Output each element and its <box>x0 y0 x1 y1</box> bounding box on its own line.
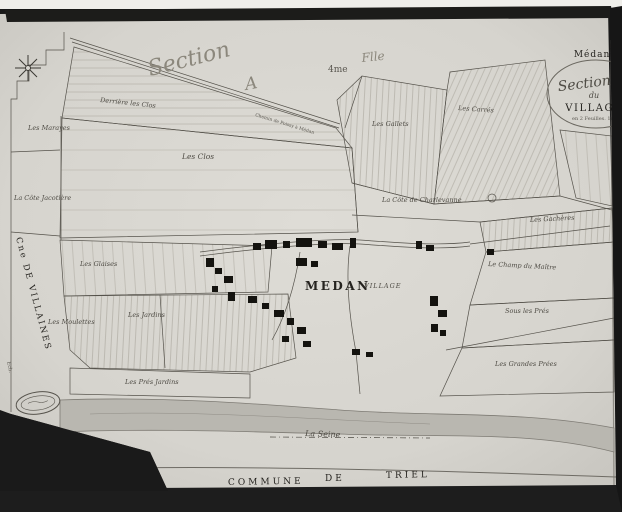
triel-word-triel: TRIEL <box>386 470 430 481</box>
label-les-pres-jardins: Les Prés Jardins <box>124 378 179 386</box>
field-les-carres <box>434 60 560 204</box>
triel-word-de: DE <box>325 474 345 484</box>
label-la-cote-jacotiere: La Côte Jacotière <box>13 194 71 202</box>
cartouche-note: en 2 Feuilles. 1re <box>572 116 616 122</box>
sheet-word: Flle <box>360 49 385 65</box>
label-les-clos: Les Clos <box>181 152 214 161</box>
label-les-moulettes: Les Moulettes <box>47 318 95 326</box>
cartouche-commune: Médan. <box>574 49 614 60</box>
label-sous-les-pres: Sous les Prés <box>505 307 550 315</box>
label-les-glaises: Les Glaises <box>79 260 118 268</box>
cartouche-du: du <box>589 91 599 100</box>
label-les-gallets: Les Gallets <box>371 120 409 128</box>
scanned-cadastral-map-photo: Section A 4me Flle Médan. Section A du V… <box>0 0 622 512</box>
sheet-number: 4me <box>328 65 348 75</box>
label-medan: MEDAN <box>305 279 371 293</box>
field-les-glaises <box>60 240 272 296</box>
label-la-seine: La Seine <box>304 429 341 439</box>
label-les-marayes: Les Marayes <box>27 124 71 132</box>
label-les-jardins: Les Jardins <box>127 311 166 319</box>
field-les-moulettes-jardins <box>64 294 296 372</box>
label-medan-village: VILLAGE <box>364 282 402 290</box>
triel-word-commune: COMMUNE <box>228 477 304 488</box>
map-canvas: Section A 4me Flle Médan. Section A du V… <box>0 0 622 512</box>
label-la-cote-de-charlevanne: La Côte de Charlevanne <box>381 196 462 204</box>
label-les-grandes-prees: Les Grandes Prées <box>494 360 558 368</box>
